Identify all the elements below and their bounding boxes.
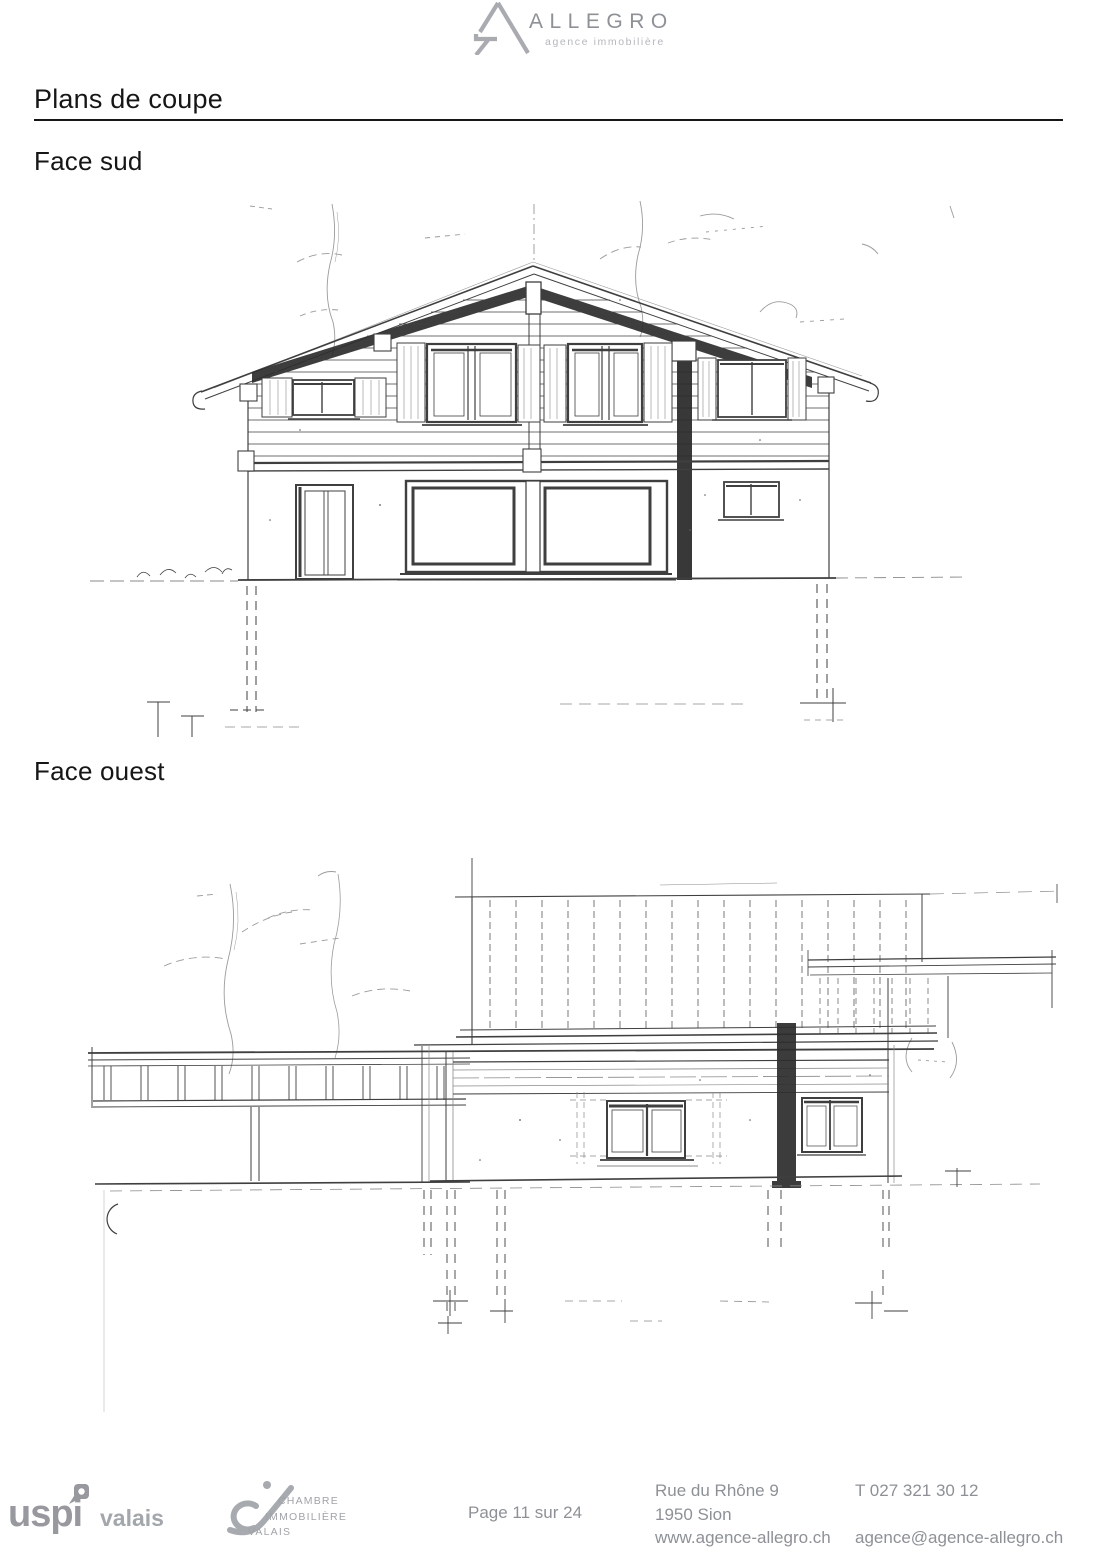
chambre-line: VALAIS [248,1525,347,1541]
right-annex [808,950,1056,1038]
brand-tagline: agence immobilière [545,36,665,48]
ground-floor [296,481,784,580]
title-rule [34,119,1063,121]
footer-email: agence@agence-allegro.ch [855,1526,1063,1550]
window-b [797,1098,866,1155]
section-title-face-ouest: Face ouest [34,756,165,787]
address-line: 1950 Sion [655,1503,831,1527]
gable-block [455,858,1062,1044]
footer-address: Rue du Rhône 9 1950 Sion www.agence-alle… [655,1479,831,1550]
chimney [777,1023,796,1181]
uspi-region-text: valais [100,1505,164,1531]
window-a [570,1092,727,1166]
ground-and-foundation [90,568,968,738]
face-sud-drawing [60,190,1010,750]
section-title-face-sud: Face sud [34,146,143,177]
face-ouest-drawing [55,850,1075,1440]
chambre-line: IMMOBILIÈRE [248,1510,347,1526]
page-title: Plans de coupe [34,84,223,115]
address-line: Rue du Rhône 9 [655,1479,831,1503]
uspi-logo-text: uspi [8,1493,82,1535]
ground-and-foundation-2 [95,1168,1040,1412]
document-page: ALLEGRO agence immobilière Plans de coup… [0,0,1100,1552]
footer-phone: T 027 321 30 12 [855,1479,979,1503]
chambre-immobiliere-logo-text: CHAMBRE IMMOBILIÈRE VALAIS [248,1494,347,1541]
chambre-line: CHAMBRE [248,1494,347,1510]
brand-name: ALLEGRO [529,10,674,34]
footer-website: www.agence-allegro.ch [655,1526,831,1550]
allegro-logo-mark-icon [466,1,530,55]
uspi-valais-logo: uspi valais [8,1482,178,1538]
page-indicator: Page 11 sur 24 [468,1501,582,1525]
